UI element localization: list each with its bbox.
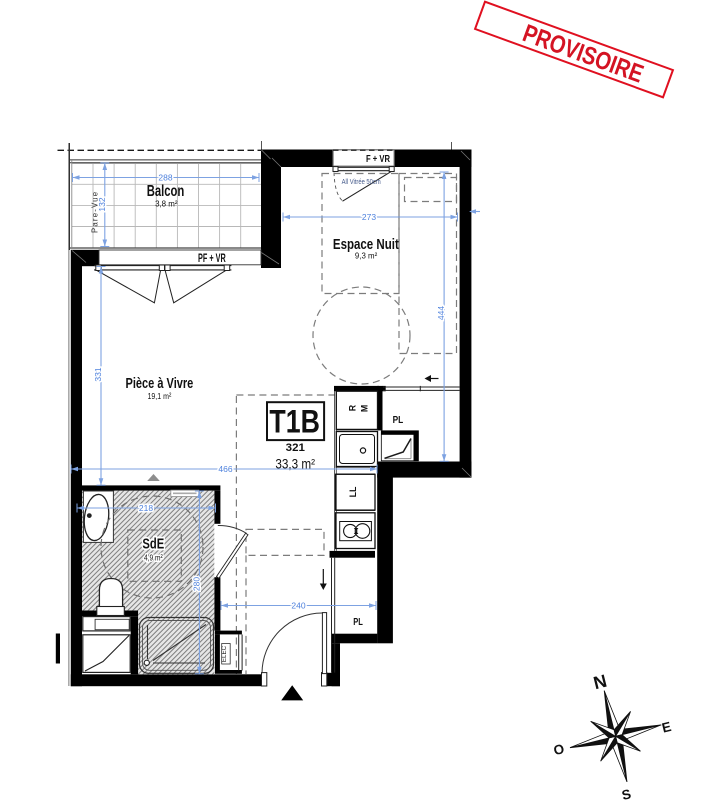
svg-text:SdE: SdE bbox=[142, 536, 164, 553]
svg-text:273: 273 bbox=[362, 212, 376, 222]
svg-text:R: R bbox=[348, 404, 358, 411]
svg-text:3,8 m²: 3,8 m² bbox=[155, 199, 177, 209]
svg-text:132: 132 bbox=[97, 197, 107, 211]
svg-text:Balcon: Balcon bbox=[147, 183, 185, 200]
svg-text:466: 466 bbox=[218, 464, 232, 474]
svg-text:280: 280 bbox=[191, 577, 201, 591]
svg-text:321: 321 bbox=[286, 442, 305, 454]
svg-text:PF + VR: PF + VR bbox=[198, 253, 226, 265]
svg-text:444: 444 bbox=[436, 306, 446, 320]
svg-text:F + VR: F + VR bbox=[366, 153, 390, 165]
svg-text:PL: PL bbox=[393, 414, 404, 426]
svg-text:All Vitrée 50cm: All Vitrée 50cm bbox=[342, 179, 381, 186]
svg-text:Pièce à Vivre: Pièce à Vivre bbox=[126, 375, 194, 392]
svg-text:19,1 m²: 19,1 m² bbox=[148, 391, 172, 401]
svg-text:ELEC: ELEC bbox=[221, 645, 228, 662]
svg-text:9,3 m²: 9,3 m² bbox=[355, 251, 377, 261]
svg-text:4,9 m²: 4,9 m² bbox=[144, 553, 163, 563]
svg-text:LL: LL bbox=[348, 486, 358, 497]
svg-text:288: 288 bbox=[158, 173, 172, 183]
svg-text:331: 331 bbox=[93, 367, 103, 381]
svg-text:T1B: T1B bbox=[269, 403, 320, 439]
svg-text:240: 240 bbox=[291, 601, 305, 611]
svg-text:218: 218 bbox=[139, 503, 153, 513]
svg-text:PL: PL bbox=[353, 616, 363, 628]
svg-text:M: M bbox=[360, 405, 370, 412]
